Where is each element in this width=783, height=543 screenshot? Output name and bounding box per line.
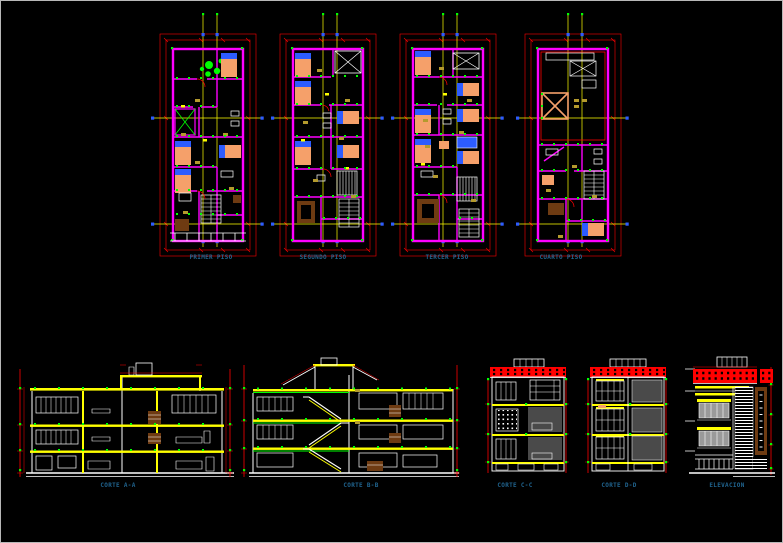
section-label-elevacion: ELEVACION (709, 482, 744, 489)
section-label-corte-a-a: CORTE A-A (100, 482, 135, 489)
plan-label-tercer-piso: TERCER PISO (425, 254, 468, 261)
cad-canvas: PRIMER PISO SEGUNDO PISO TERCER PISO CUA… (1, 1, 783, 543)
section-label-corte-d-d: CORTE D-D (601, 482, 636, 489)
plan-label-cuarto-piso: CUARTO PISO (539, 254, 582, 261)
drawing-sheet: PRIMER PISO SEGUNDO PISO TERCER PISO CUA… (0, 0, 783, 543)
plan-label-segundo-piso: SEGUNDO PISO (300, 254, 347, 261)
section-label-corte-b-b: CORTE B-B (343, 482, 378, 489)
section-label-corte-c-c: CORTE C-C (497, 482, 532, 489)
plan-label-primer-piso: PRIMER PISO (189, 254, 232, 261)
